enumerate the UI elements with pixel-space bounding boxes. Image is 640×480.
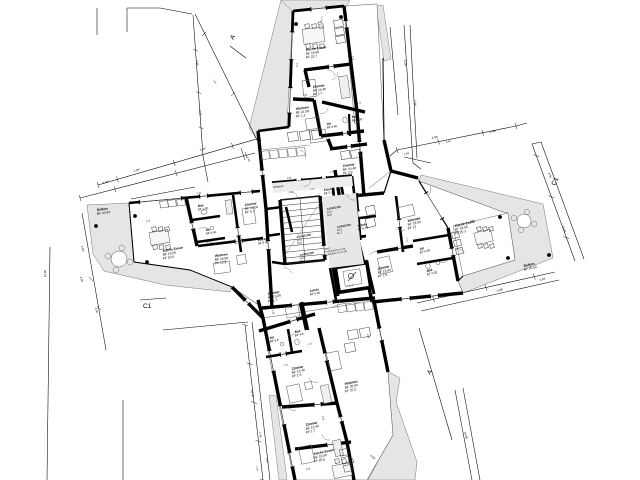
svg-text:C1: C1 [143, 303, 152, 310]
svg-text:9.40: 9.40 [198, 110, 203, 116]
svg-text:7.44: 7.44 [413, 100, 418, 106]
svg-text:7.44: 7.44 [258, 432, 263, 438]
svg-text:36.04: 36.04 [43, 270, 47, 278]
svg-text:7.44: 7.44 [195, 60, 200, 66]
svg-text:4.36¹: 4.36¹ [403, 60, 408, 67]
